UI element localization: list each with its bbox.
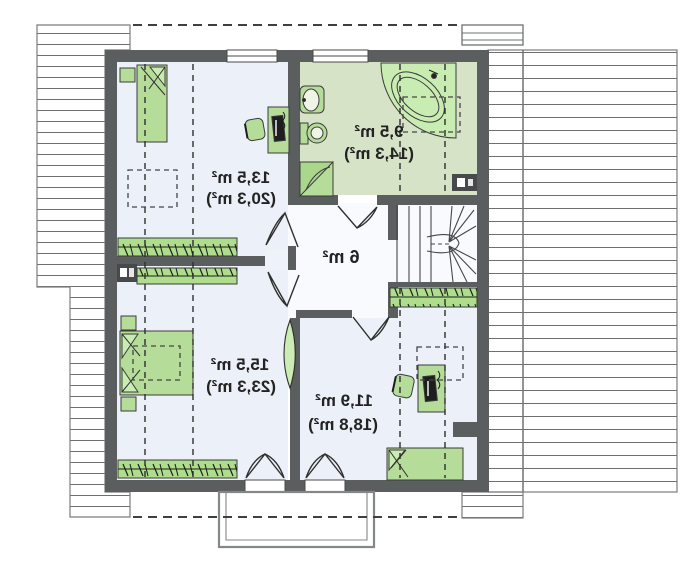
wall-divider-left-rooms	[117, 256, 265, 266]
office-chair	[392, 373, 415, 398]
window-bathroom	[313, 50, 368, 62]
room-label-area: 11,9 m²	[315, 391, 373, 410]
bed-double	[120, 331, 193, 395]
nightstand	[120, 68, 135, 82]
balcony-door-sill-right	[305, 480, 345, 492]
wall-stair-bottom-line	[398, 282, 477, 287]
wall-chimney-notch	[453, 422, 477, 437]
shaft-box-bathroom	[452, 174, 477, 191]
room-label-area: 15,5 m²	[210, 355, 269, 374]
nightstand	[121, 397, 136, 411]
balcony-door-sill-left	[245, 480, 285, 492]
bathtub-tap-icon	[432, 74, 437, 79]
floor-plan-svg: 13,5 m² (20,3 m²) 9,5 m² (14,3 m²) 6 m² …	[0, 0, 700, 575]
room-label-area: 13,5 m²	[211, 168, 270, 187]
stairwell-floor	[395, 205, 477, 287]
wall-hall-south	[296, 310, 352, 318]
wall-right	[477, 62, 489, 480]
room-label-area: 6 m²	[322, 247, 359, 267]
roof-hatch-right	[462, 50, 677, 518]
wall-top	[105, 50, 489, 62]
wall-bathroom-west	[288, 62, 300, 203]
office-chair	[244, 118, 265, 142]
chimney-bottom	[462, 492, 523, 518]
shaft-box-left	[117, 264, 137, 282]
room-label-area-total: (14,3 m²)	[344, 144, 414, 163]
chimney-top	[462, 25, 523, 45]
wall-left	[105, 62, 117, 480]
room-label-area-total: (23,3 m²)	[206, 377, 276, 396]
wall-bathroom-south-b	[377, 195, 477, 205]
toilet	[300, 123, 327, 144]
desk-with-computer	[268, 107, 289, 153]
nightstand	[121, 316, 136, 330]
wall-hall-pier	[288, 246, 296, 270]
desk-with-computer	[418, 365, 445, 412]
sink	[300, 86, 324, 113]
corner-shower	[300, 162, 333, 196]
room-label-area-total: (18,8 m²)	[308, 415, 378, 434]
window-room-top-left	[227, 50, 277, 62]
floor-plan: 13,5 m² (20,3 m²) 9,5 m² (14,3 m²) 6 m² …	[0, 0, 700, 575]
room-label-area: 9,5 m²	[354, 122, 403, 141]
bed-single	[387, 448, 463, 480]
doorway-floor	[265, 250, 288, 270]
room-label-area-total: (20,3 m²)	[206, 189, 276, 208]
balcony	[219, 492, 374, 547]
bed-single	[137, 65, 167, 142]
